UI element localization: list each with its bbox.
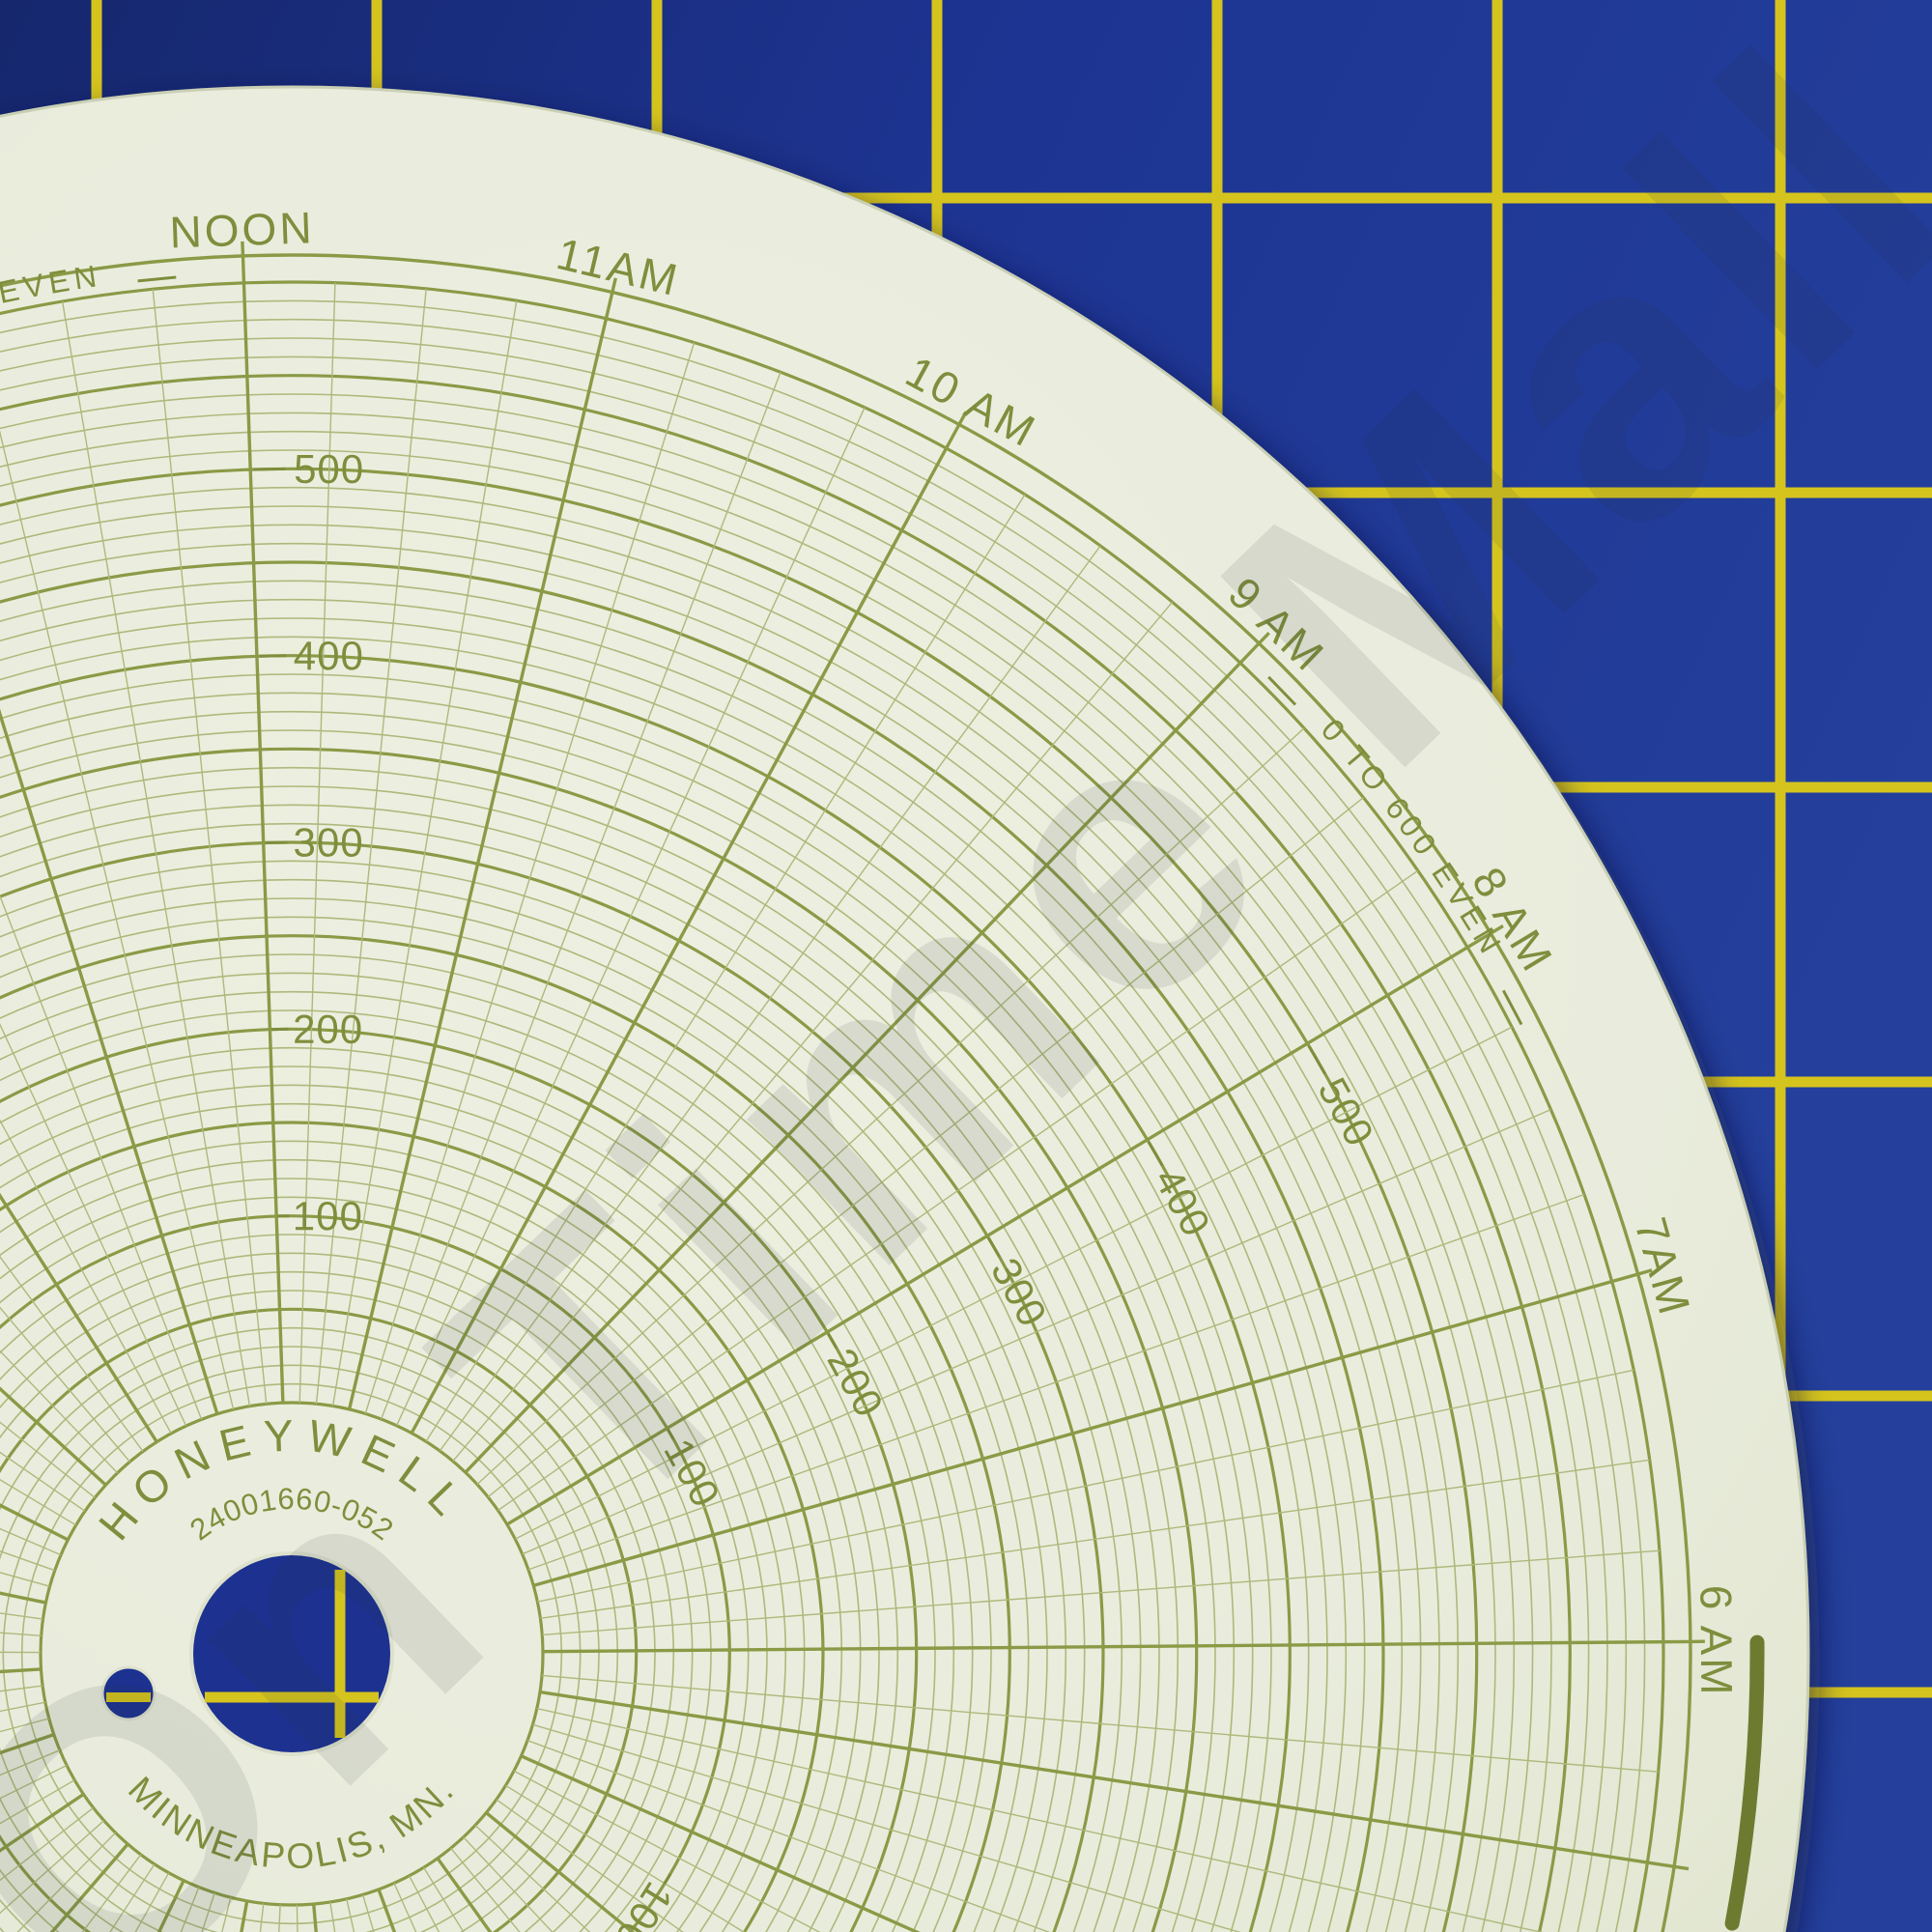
time-label: NOON: [169, 202, 316, 257]
scale-label: 100: [293, 1193, 363, 1238]
product-photo-chart-paper: 1002003004005001002003004005001002003004…: [0, 0, 1932, 1932]
scale-leader: [253, 469, 285, 469]
scale-leader: [260, 656, 287, 657]
hour-tick: [1674, 1866, 1689, 1868]
time-label: 6 AM: [1690, 1584, 1742, 1697]
scale-label: 400: [294, 633, 364, 678]
scale-label: 500: [294, 446, 364, 492]
photo-svg: 1002003004005001002003004005001002003004…: [0, 0, 1932, 1932]
scale-label: 200: [293, 1007, 363, 1052]
scale-label: 300: [293, 820, 363, 866]
